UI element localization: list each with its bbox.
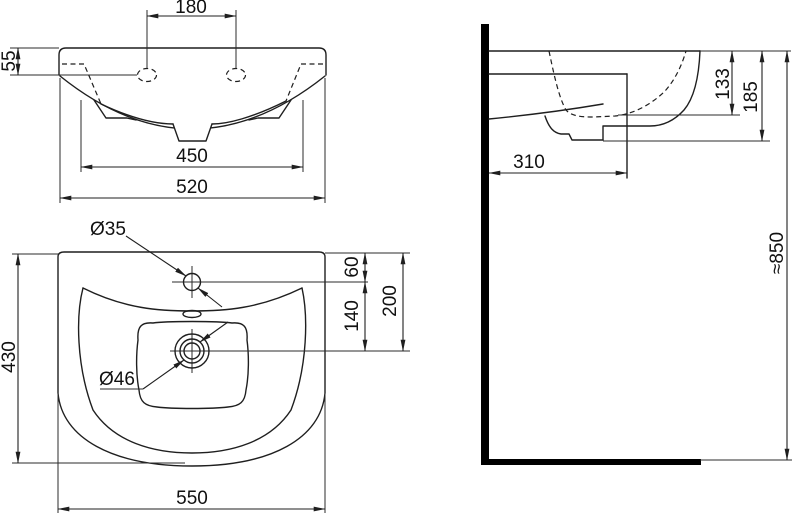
side-view: 133 185 ≈850 310: [481, 24, 792, 465]
hidden-bowl-profile: [549, 51, 686, 117]
front-inner-edge-left: [101, 104, 173, 124]
dim-label-mounting-height: ≈850: [767, 232, 788, 274]
dim-label-faucet-to-drain: 140: [342, 300, 363, 332]
label-faucet-diameter: Ø35: [90, 219, 126, 240]
dim-label-wall-projection: 310: [513, 152, 545, 173]
dim-label-overall-depth: 430: [0, 341, 20, 373]
mounting-hole-left: [138, 69, 157, 82]
trap-profile: [545, 116, 603, 140]
leader-drain-1: [143, 360, 184, 389]
dim-label-back-to-drain: 200: [380, 285, 401, 317]
mounting-hole-right: [227, 69, 246, 82]
leader-faucet-1: [126, 236, 186, 276]
dim-label-bowl-width: 450: [176, 146, 208, 167]
drain-trap-mask: [173, 124, 212, 141]
dim-label-front-height: 185: [741, 81, 762, 113]
technical-drawing-canvas: 55 180 450 520: [0, 0, 794, 517]
dim-label-rim-height: 55: [0, 50, 20, 71]
dim-label-plan-width: 550: [176, 488, 208, 509]
dim-label-overall-width: 520: [176, 177, 208, 198]
wall-section: [481, 24, 489, 465]
label-drain-diameter: Ø46: [99, 369, 135, 390]
dim-label-hole-spacing: 180: [175, 0, 207, 18]
hidden-ledge-left: [62, 64, 101, 104]
washbasin-dimension-drawing: 55 180 450 520: [0, 0, 794, 517]
front-view: 55 180 450 520: [0, 0, 326, 203]
front-rim-outline: [59, 48, 326, 75]
leader-drain-2: [200, 322, 228, 342]
front-profile: [603, 51, 700, 140]
plan-view: Ø35 Ø46 60 140 200 430 550: [0, 219, 410, 513]
dim-label-faucet-offset: 60: [342, 256, 363, 277]
leader-faucet-2: [198, 288, 222, 307]
floor-section: [481, 459, 701, 465]
dim-label-bowl-depth: 133: [713, 68, 734, 100]
back-ledge-edge: [489, 104, 603, 119]
